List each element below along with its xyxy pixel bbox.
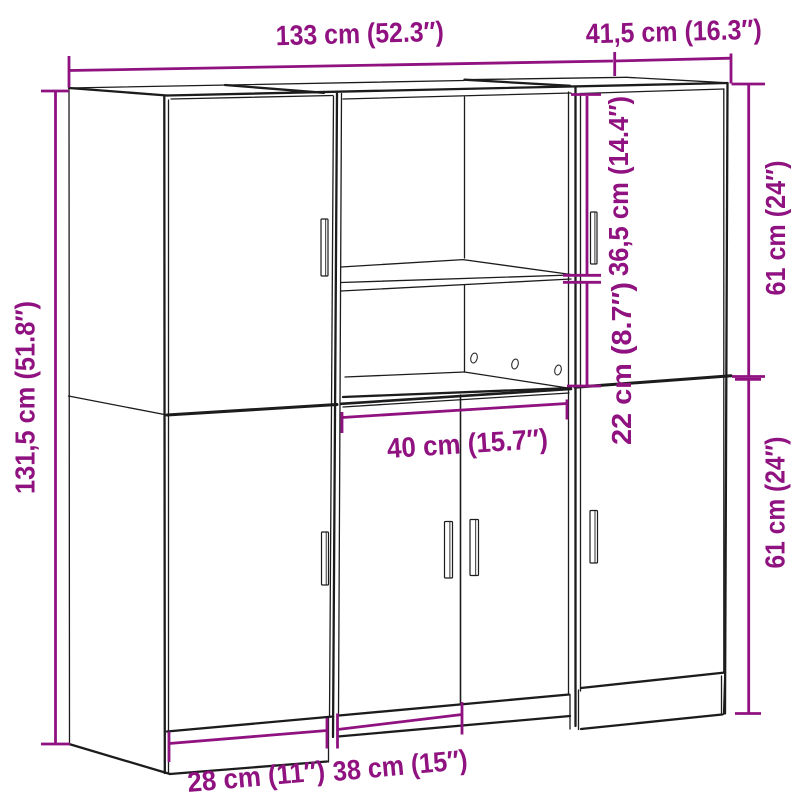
svg-text:36,5 cm (14.4″): 36,5 cm (14.4″)	[603, 96, 634, 276]
svg-text:41,5 cm (16.3″): 41,5 cm (16.3″)	[585, 14, 762, 50]
svg-text:61 cm (24″): 61 cm (24″)	[760, 437, 791, 569]
svg-text:133 cm (52.3″): 133 cm (52.3″)	[275, 16, 444, 51]
svg-text:61 cm (24″): 61 cm (24″)	[760, 161, 791, 296]
svg-text:22 cm (8.7″): 22 cm (8.7″)	[606, 282, 637, 445]
svg-text:131,5 cm (51.8″): 131,5 cm (51.8″)	[10, 301, 41, 494]
